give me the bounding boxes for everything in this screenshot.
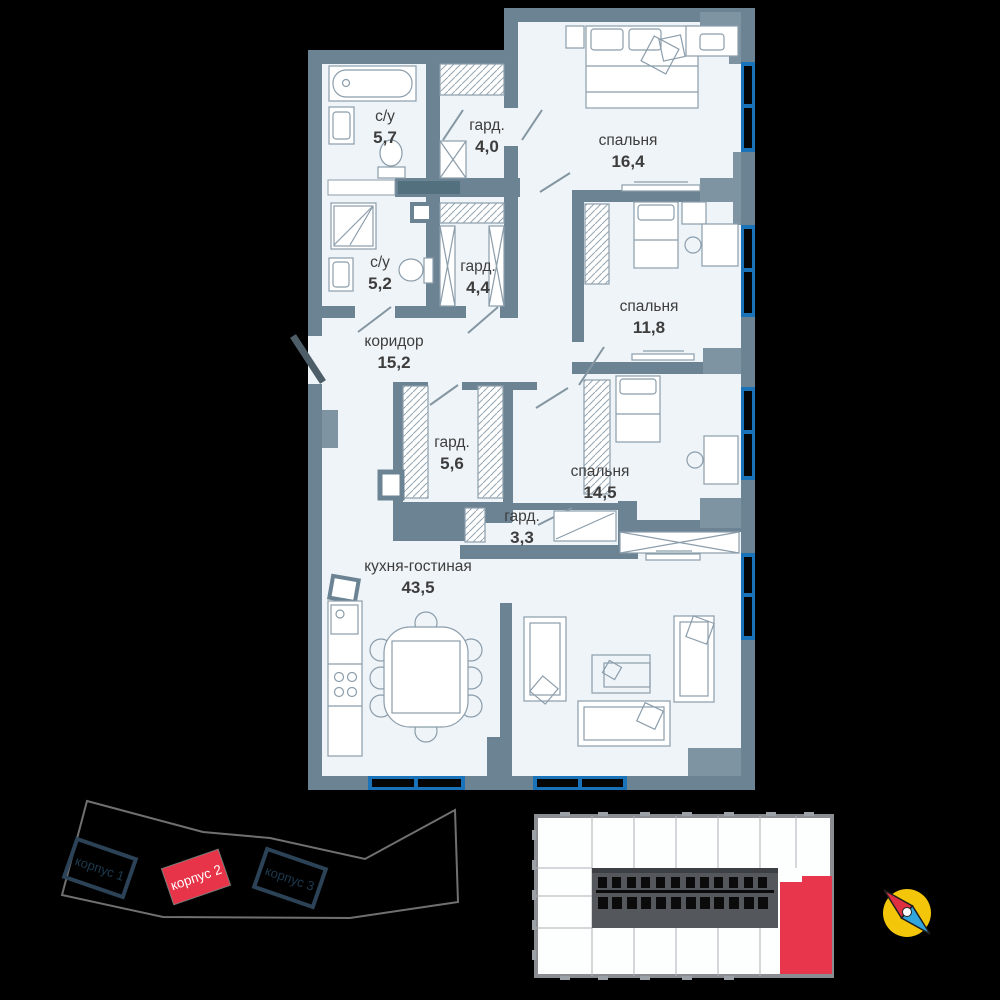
room-name: с/у bbox=[370, 254, 390, 271]
room-area: 3,3 bbox=[510, 528, 534, 547]
room-name: спальня bbox=[571, 463, 630, 480]
window bbox=[741, 225, 755, 317]
window bbox=[368, 776, 465, 790]
room-name: гард. bbox=[504, 508, 540, 525]
sofa bbox=[578, 701, 670, 746]
room-name: гард. bbox=[460, 258, 496, 275]
room-area: 5,6 bbox=[440, 454, 464, 473]
window bbox=[741, 387, 755, 480]
window bbox=[533, 776, 627, 790]
compass-icon bbox=[883, 889, 931, 937]
washbasin bbox=[329, 258, 353, 291]
highlighted-unit[interactable] bbox=[780, 876, 832, 974]
floor-plate bbox=[532, 812, 832, 980]
room-name: спальня bbox=[620, 298, 679, 315]
shower bbox=[331, 203, 376, 249]
room-area: 43,5 bbox=[401, 578, 434, 597]
dresser bbox=[686, 26, 738, 56]
room-label-bathroom2: с/у 5,2 bbox=[368, 254, 392, 293]
room-area: 16,4 bbox=[611, 152, 645, 171]
room-name: коридор bbox=[364, 333, 423, 350]
apartment-plan-page: с/у 5,7 гард. 4,0 спальня 16,4 с/у 5,2 г… bbox=[0, 0, 1000, 1000]
room-area: 14,5 bbox=[583, 483, 616, 502]
room-area: 4,0 bbox=[475, 137, 499, 156]
room-area: 11,8 bbox=[633, 318, 665, 337]
bathtub bbox=[329, 66, 416, 101]
single-bed bbox=[616, 376, 660, 442]
window bbox=[741, 62, 755, 152]
chaise bbox=[674, 616, 714, 702]
room-name: гард. bbox=[469, 117, 505, 134]
room-area: 5,2 bbox=[368, 274, 392, 293]
plan-canvas: с/у 5,7 гард. 4,0 спальня 16,4 с/у 5,2 г… bbox=[0, 0, 1000, 1000]
floorplan: с/у 5,7 гард. 4,0 спальня 16,4 с/у 5,2 г… bbox=[293, 8, 755, 790]
room-name: гард. bbox=[434, 434, 470, 451]
room-area: 4,4 bbox=[466, 278, 490, 297]
room-name: с/у bbox=[375, 108, 395, 125]
room-label-bathroom1: с/у 5,7 bbox=[373, 108, 397, 147]
room-area: 15,2 bbox=[377, 353, 410, 372]
sofa bbox=[524, 617, 566, 704]
room-area: 5,7 bbox=[373, 128, 397, 147]
toilet bbox=[399, 258, 433, 283]
window bbox=[741, 553, 755, 640]
nightstand bbox=[566, 26, 584, 48]
room-name: спальня bbox=[599, 132, 658, 149]
double-bed bbox=[586, 26, 698, 108]
washbasin bbox=[329, 107, 354, 144]
kitchen-counter bbox=[328, 601, 362, 756]
core-corridor bbox=[592, 868, 778, 928]
room-name: кухня-гостиная bbox=[364, 558, 472, 575]
